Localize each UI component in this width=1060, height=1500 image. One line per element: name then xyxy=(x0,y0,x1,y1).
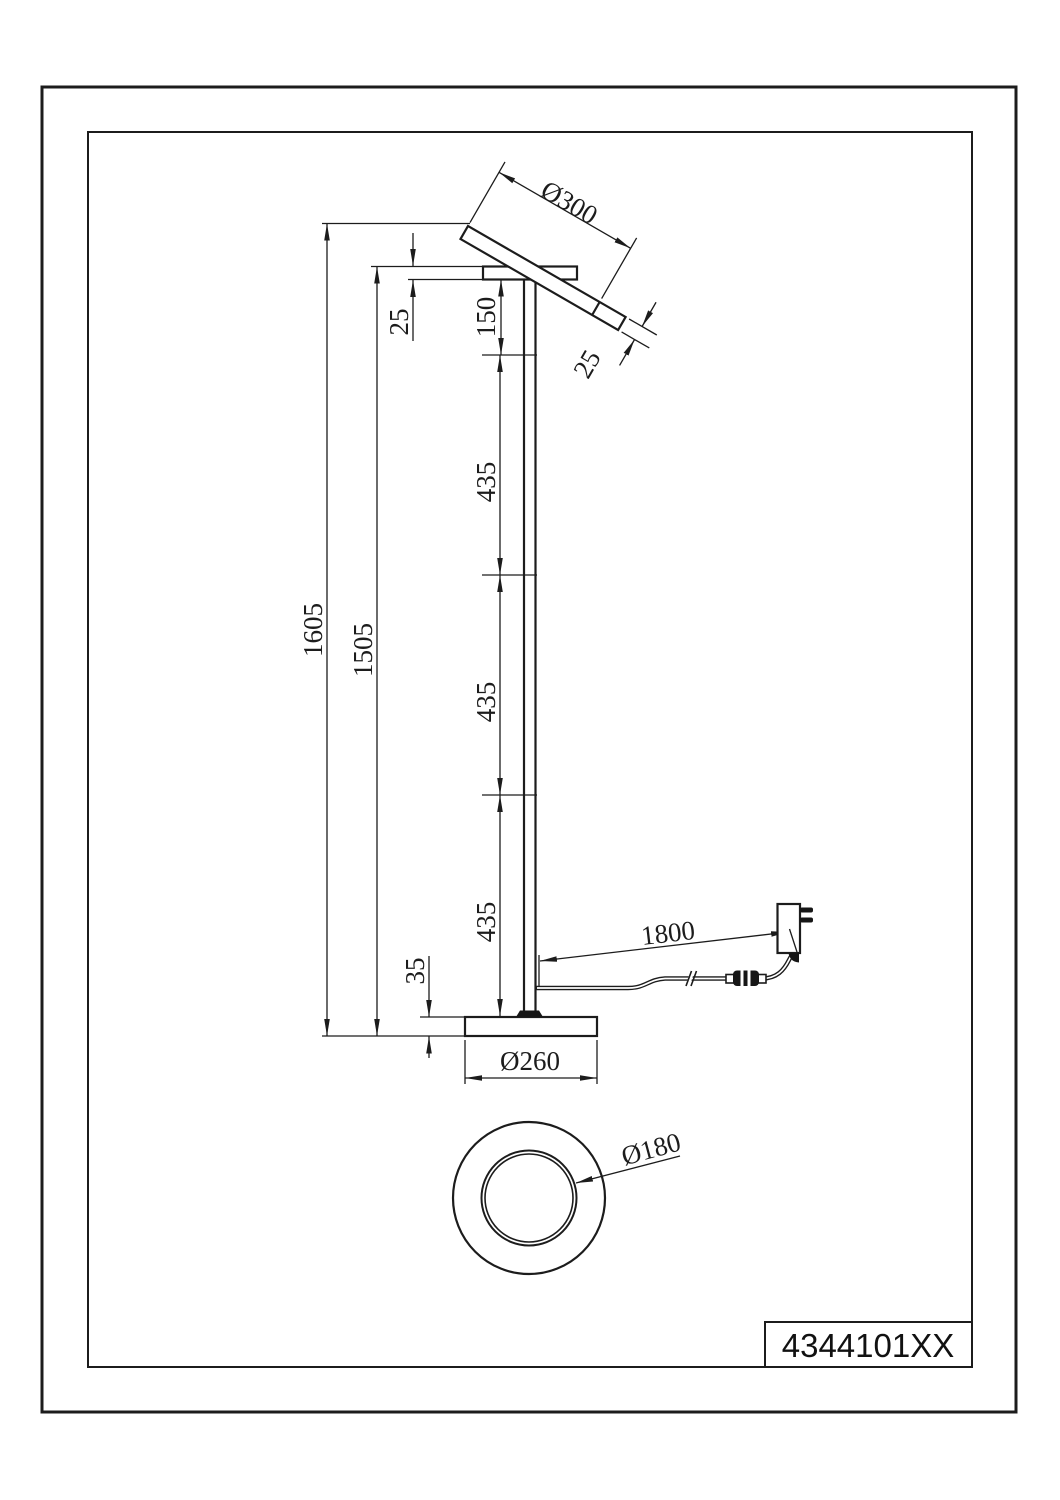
dim-label-ring-diameter: Ø180 xyxy=(618,1127,684,1172)
base xyxy=(465,1017,597,1036)
dim-label-top-segment: 150 xyxy=(471,297,501,338)
dim-top-segment: 150 xyxy=(471,280,501,356)
dim-base-height: 35 xyxy=(400,956,430,1058)
dim-label-head-diameter: Ø300 xyxy=(536,175,603,231)
head-top-view: Ø180 xyxy=(453,1122,684,1274)
title-block: 4344101XX xyxy=(765,1322,972,1367)
dim-overall-height: 1605 xyxy=(298,224,328,1037)
adapter-prongs xyxy=(800,908,813,923)
dim-label-segment-3: 435 xyxy=(471,902,501,943)
dim-label-arm-thickness: 25 xyxy=(384,309,414,336)
dim-segment-2: 435 xyxy=(471,575,501,795)
power-adapter xyxy=(778,904,814,963)
led-ring-inner xyxy=(485,1154,573,1242)
dim-label-cable-length: 1800 xyxy=(639,915,696,951)
dim-label-base-height: 35 xyxy=(400,958,430,985)
dim-label-base-diameter: Ø260 xyxy=(500,1046,560,1076)
outer-border xyxy=(42,87,1016,1412)
part-number: 4344101XX xyxy=(782,1327,955,1364)
pole-base-joint xyxy=(516,1011,543,1018)
inner-border xyxy=(88,132,972,1367)
head-outline-circle xyxy=(453,1122,605,1274)
dim-arm-height: 1505 xyxy=(348,267,378,1037)
dim-label-head-thickness: 25 xyxy=(567,345,606,383)
led-ring-outer xyxy=(482,1151,577,1246)
inline-connector xyxy=(726,971,766,987)
dim-label-segment-1: 435 xyxy=(471,462,501,503)
dim-label-segment-2: 435 xyxy=(471,682,501,723)
dim-label-arm-height: 1505 xyxy=(348,623,378,677)
technical-drawing: Ø300 25 1605 1505 xyxy=(0,0,1060,1500)
drawing-sheet: Ø300 25 1605 1505 xyxy=(0,0,1060,1500)
dim-segment-3: 435 xyxy=(471,795,501,1016)
dimension-lines: 1605 1505 25 150 435 435 435 xyxy=(298,224,788,1085)
dim-base-diameter: Ø260 xyxy=(465,1040,597,1084)
dim-arm-thickness: 25 xyxy=(384,233,414,341)
dim-segment-1: 435 xyxy=(471,355,501,575)
dim-label-overall-height: 1605 xyxy=(298,603,328,657)
